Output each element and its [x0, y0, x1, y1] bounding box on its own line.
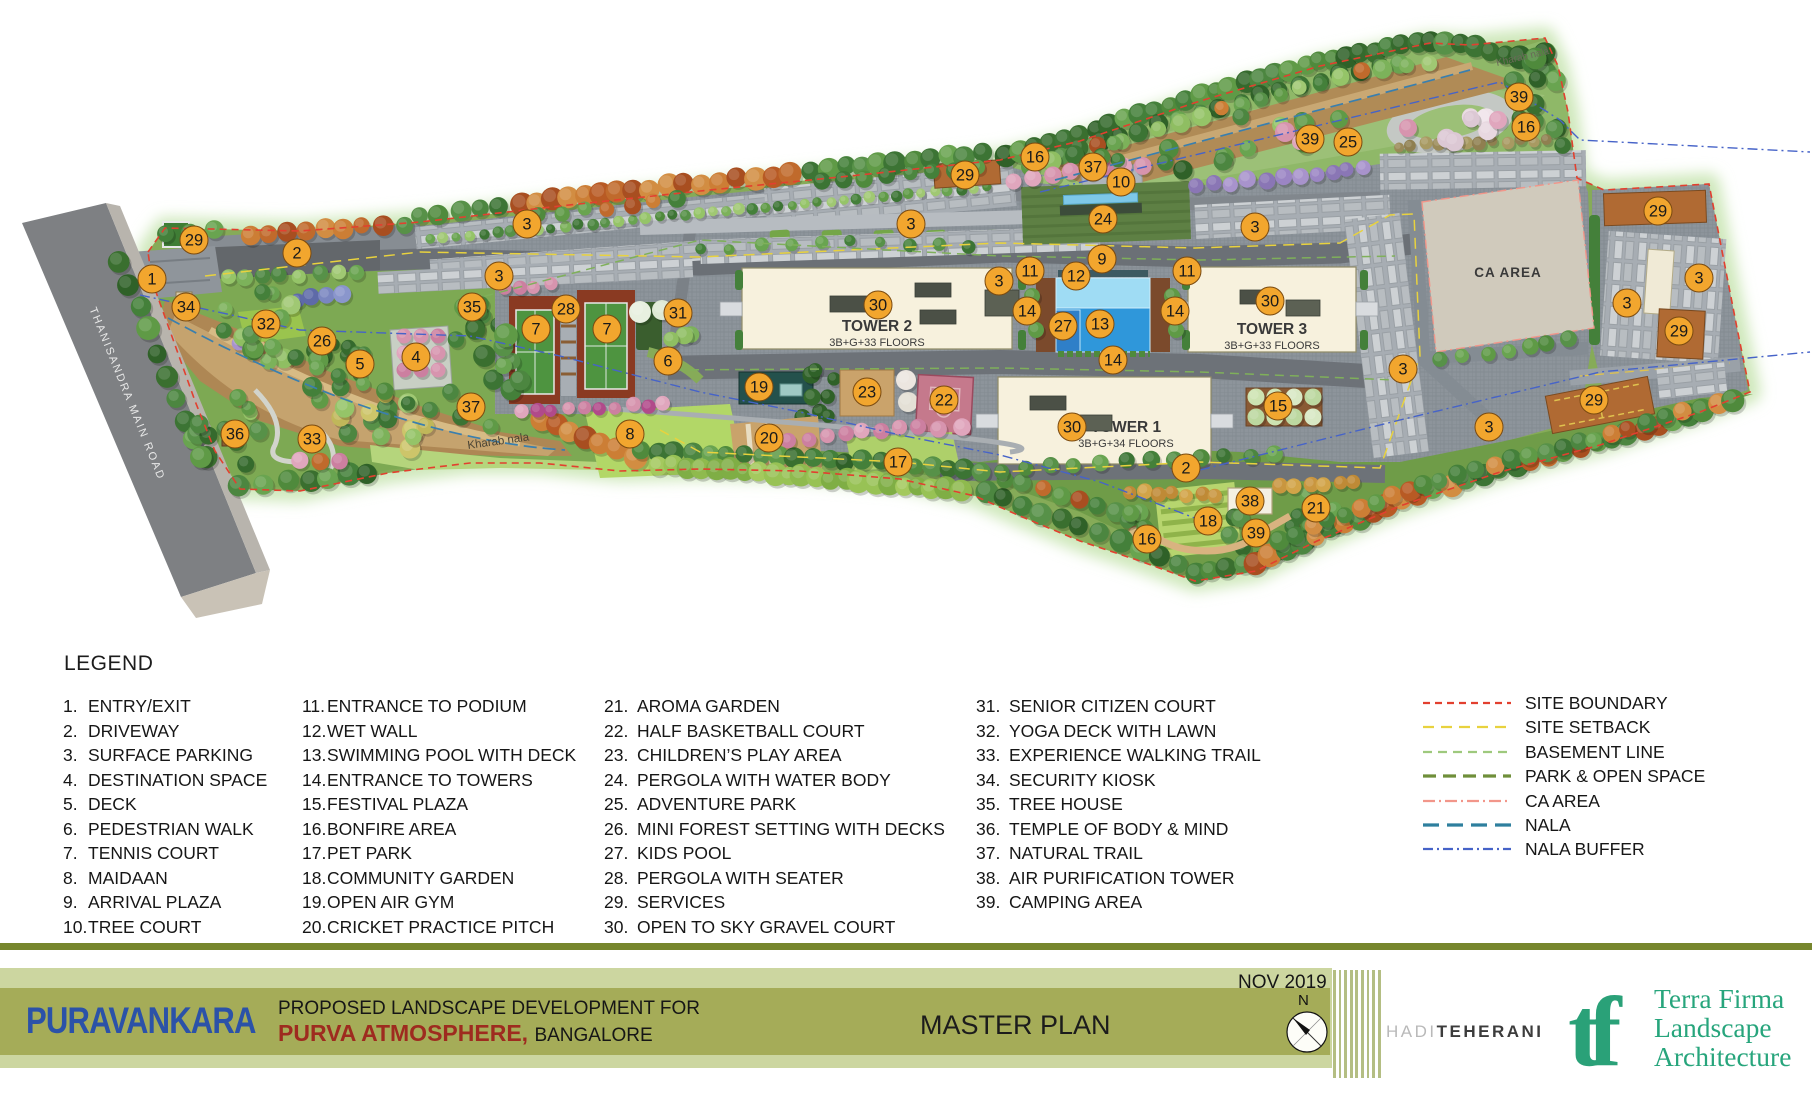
svg-text:3: 3: [1694, 270, 1703, 288]
svg-text:4: 4: [411, 349, 420, 367]
svg-text:3: 3: [494, 268, 503, 286]
svg-text:36: 36: [226, 426, 244, 444]
svg-text:37: 37: [462, 399, 480, 417]
svg-text:22: 22: [935, 392, 953, 410]
svg-text:3: 3: [1398, 361, 1407, 379]
svg-text:10: 10: [1112, 174, 1130, 192]
svg-text:39: 39: [1301, 131, 1319, 149]
svg-text:3B+G+33 FLOORS: 3B+G+33 FLOORS: [1224, 340, 1319, 352]
svg-text:3: 3: [522, 216, 531, 234]
svg-text:37: 37: [1084, 159, 1102, 177]
svg-text:32: 32: [257, 316, 275, 334]
svg-text:33: 33: [303, 431, 321, 449]
svg-text:29: 29: [185, 232, 203, 250]
svg-text:17: 17: [889, 454, 907, 472]
svg-text:35: 35: [463, 299, 481, 317]
svg-text:3B+G+33 FLOORS: 3B+G+33 FLOORS: [829, 337, 924, 349]
svg-text:28: 28: [557, 301, 575, 319]
svg-text:38: 38: [1241, 493, 1259, 511]
svg-text:21: 21: [1307, 500, 1325, 518]
svg-text:34: 34: [177, 299, 195, 317]
svg-text:2: 2: [292, 245, 301, 263]
svg-text:8: 8: [625, 426, 634, 444]
svg-text:14: 14: [1018, 303, 1036, 321]
svg-text:TOWER 2: TOWER 2: [842, 318, 912, 335]
svg-text:6: 6: [663, 353, 672, 371]
svg-text:13: 13: [1091, 316, 1109, 334]
svg-text:5: 5: [355, 356, 364, 374]
svg-text:3: 3: [906, 216, 915, 234]
svg-text:7: 7: [531, 321, 540, 339]
svg-text:16: 16: [1517, 119, 1535, 137]
svg-text:31: 31: [669, 305, 687, 323]
svg-text:1: 1: [147, 271, 156, 289]
svg-text:20: 20: [760, 430, 778, 448]
svg-text:14: 14: [1166, 303, 1184, 321]
svg-text:3: 3: [994, 273, 1003, 291]
svg-text:3: 3: [1250, 219, 1259, 237]
svg-text:11: 11: [1021, 263, 1038, 281]
svg-text:19: 19: [750, 379, 768, 397]
svg-text:27: 27: [1054, 318, 1072, 336]
svg-text:12: 12: [1067, 268, 1085, 286]
svg-text:29: 29: [1670, 323, 1688, 341]
svg-text:16: 16: [1138, 531, 1156, 549]
svg-text:26: 26: [313, 333, 331, 351]
svg-text:29: 29: [1585, 392, 1603, 410]
svg-text:23: 23: [858, 384, 876, 402]
svg-text:18: 18: [1199, 513, 1217, 531]
svg-text:9: 9: [1097, 251, 1106, 269]
svg-text:30: 30: [869, 297, 887, 315]
svg-text:3: 3: [1484, 419, 1493, 437]
svg-text:39: 39: [1510, 89, 1528, 107]
svg-text:11: 11: [1178, 263, 1195, 281]
svg-text:3B+G+34 FLOORS: 3B+G+34 FLOORS: [1078, 438, 1173, 450]
svg-text:39: 39: [1247, 525, 1265, 543]
svg-text:24: 24: [1094, 211, 1112, 229]
svg-text:30: 30: [1063, 419, 1081, 437]
svg-text:3: 3: [1622, 295, 1631, 313]
svg-text:25: 25: [1339, 134, 1357, 152]
svg-text:7: 7: [602, 321, 611, 339]
svg-text:14: 14: [1104, 352, 1122, 370]
svg-text:TOWER 3: TOWER 3: [1237, 321, 1308, 338]
svg-text:CA AREA: CA AREA: [1474, 265, 1542, 280]
svg-text:15: 15: [1269, 398, 1287, 416]
svg-text:16: 16: [1026, 149, 1044, 167]
svg-text:29: 29: [1649, 203, 1667, 221]
svg-text:30: 30: [1261, 293, 1279, 311]
svg-text:2: 2: [1181, 460, 1190, 478]
svg-text:29: 29: [956, 167, 974, 185]
